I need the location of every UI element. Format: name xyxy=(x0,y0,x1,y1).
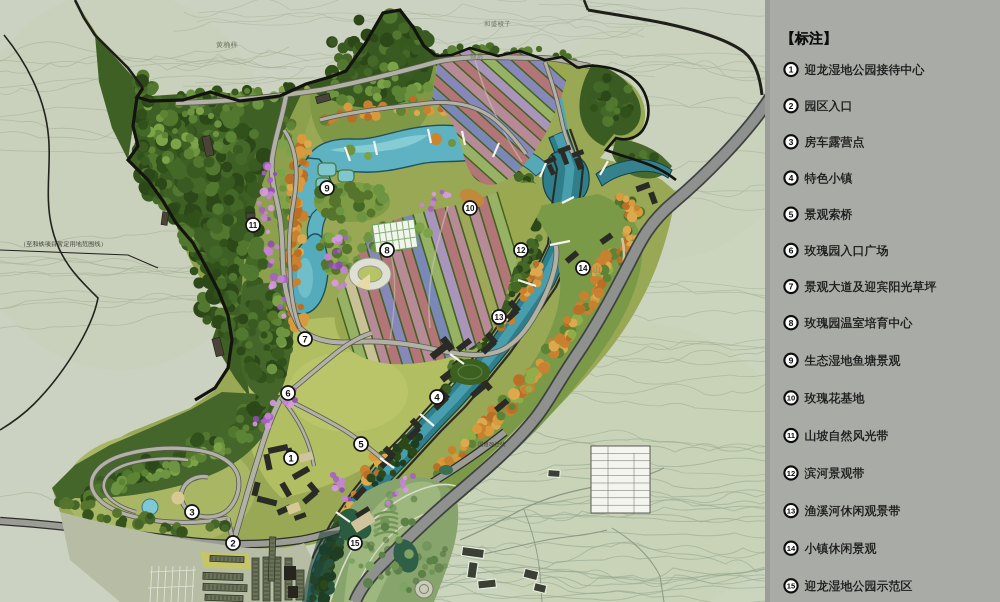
svg-text:10: 10 xyxy=(787,394,795,403)
svg-text:13: 13 xyxy=(495,313,504,322)
svg-text:3: 3 xyxy=(789,137,794,147)
svg-text:15: 15 xyxy=(787,582,796,591)
svg-text:10: 10 xyxy=(466,204,475,213)
svg-text:14: 14 xyxy=(579,264,588,273)
svg-text:3: 3 xyxy=(189,507,194,518)
svg-text:7: 7 xyxy=(789,282,794,292)
svg-text:2: 2 xyxy=(789,101,794,111)
svg-text:13: 13 xyxy=(787,506,795,515)
svg-text:7: 7 xyxy=(302,334,307,345)
svg-text:4: 4 xyxy=(434,392,440,403)
svg-text:5: 5 xyxy=(358,439,364,450)
svg-text:14: 14 xyxy=(787,544,796,553)
svg-text:8: 8 xyxy=(384,245,389,256)
svg-text:12: 12 xyxy=(787,469,795,478)
svg-text:11: 11 xyxy=(787,431,796,440)
svg-text:5: 5 xyxy=(789,209,794,219)
svg-text:6: 6 xyxy=(285,388,290,399)
svg-text:6: 6 xyxy=(789,246,794,256)
svg-text:1: 1 xyxy=(288,453,294,464)
svg-text:9: 9 xyxy=(324,183,329,194)
svg-text:2: 2 xyxy=(230,538,235,549)
svg-text:4: 4 xyxy=(789,173,794,183)
svg-text:1: 1 xyxy=(789,65,794,75)
svg-text:9: 9 xyxy=(789,355,794,365)
svg-text:11: 11 xyxy=(249,221,258,230)
svg-text:8: 8 xyxy=(789,318,794,328)
svg-text:12: 12 xyxy=(517,246,526,255)
svg-text:15: 15 xyxy=(351,539,360,548)
